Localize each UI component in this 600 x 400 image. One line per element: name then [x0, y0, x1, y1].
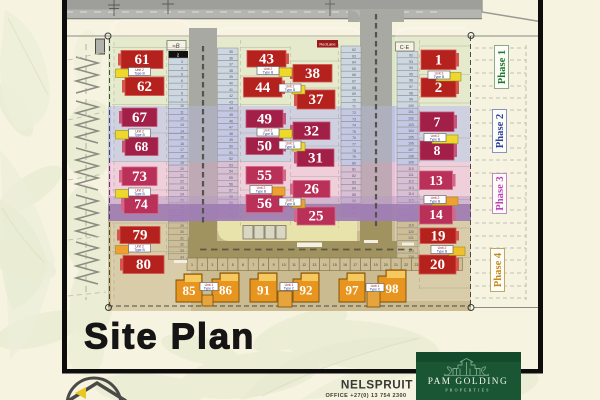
svg-text:64: 64	[352, 61, 356, 65]
svg-text:75: 75	[352, 130, 356, 134]
svg-text:49: 49	[229, 138, 233, 142]
svg-text:Phase 3: Phase 3	[495, 176, 506, 210]
svg-text:12: 12	[302, 263, 306, 267]
svg-text:113: 113	[408, 186, 414, 190]
svg-text:36: 36	[229, 56, 233, 60]
svg-text:72: 72	[352, 111, 356, 115]
svg-text:70: 70	[352, 98, 356, 102]
svg-text:94: 94	[409, 66, 413, 70]
svg-text:25: 25	[309, 209, 324, 225]
svg-text:4: 4	[222, 263, 224, 267]
svg-text:50: 50	[257, 139, 272, 155]
svg-text:93: 93	[409, 60, 413, 64]
svg-text:14: 14	[180, 129, 184, 133]
svg-text:37: 37	[229, 63, 233, 67]
svg-text:Type B: Type B	[263, 71, 274, 75]
svg-text:Type B: Type B	[285, 145, 296, 149]
svg-text:7: 7	[252, 263, 254, 267]
svg-text:OFFICE +27(0) 13 754 2300: OFFICE +27(0) 13 754 2300	[325, 393, 406, 399]
svg-text:19: 19	[431, 228, 446, 244]
svg-text:71: 71	[352, 105, 356, 109]
svg-text:Phase 1: Phase 1	[497, 50, 508, 84]
svg-text:97: 97	[346, 283, 360, 298]
svg-text:17: 17	[353, 263, 357, 267]
svg-text:92: 92	[300, 283, 313, 298]
svg-text:55: 55	[229, 176, 233, 180]
svg-text:Type B: Type B	[134, 72, 145, 76]
svg-text:86: 86	[219, 283, 233, 298]
svg-text:110: 110	[408, 167, 414, 171]
svg-text:112: 112	[408, 180, 414, 184]
svg-text:37: 37	[309, 92, 325, 108]
svg-text:114: 114	[408, 192, 414, 196]
svg-text:31: 31	[180, 236, 184, 240]
svg-text:4: 4	[181, 66, 183, 70]
svg-text:79: 79	[352, 155, 356, 159]
svg-text:73: 73	[352, 117, 356, 121]
svg-text:13: 13	[429, 173, 443, 188]
svg-text:24: 24	[180, 192, 184, 196]
svg-text:15: 15	[333, 263, 337, 267]
svg-text:3: 3	[181, 60, 183, 64]
svg-text:PAM GOLDING: PAM GOLDING	[428, 377, 508, 387]
svg-text:57: 57	[229, 189, 233, 193]
svg-text:80: 80	[136, 257, 151, 273]
svg-text:Phase 2: Phase 2	[495, 114, 506, 148]
svg-text:74: 74	[134, 197, 148, 212]
svg-text:52: 52	[229, 157, 233, 161]
svg-text:7: 7	[434, 114, 441, 129]
svg-text:96: 96	[409, 79, 413, 83]
svg-text:8: 8	[434, 143, 441, 158]
svg-text:50: 50	[229, 145, 233, 149]
svg-text:Type B: Type B	[134, 133, 145, 137]
svg-text:8: 8	[181, 92, 183, 96]
svg-text:91: 91	[257, 283, 270, 298]
svg-text:10: 10	[282, 263, 286, 267]
svg-text:NELSPRUIT: NELSPRUIT	[341, 378, 413, 392]
svg-text:20: 20	[180, 167, 184, 171]
svg-text:84: 84	[352, 187, 356, 191]
svg-text:56: 56	[229, 182, 233, 186]
svg-text:68: 68	[352, 86, 356, 90]
svg-text:78: 78	[352, 149, 356, 153]
svg-text:22: 22	[404, 263, 408, 267]
svg-text:82: 82	[352, 174, 356, 178]
svg-text:23: 23	[414, 263, 418, 267]
svg-text:109: 109	[408, 161, 414, 165]
svg-text:45: 45	[229, 113, 233, 117]
svg-text:106: 106	[408, 142, 414, 146]
svg-text:11: 11	[180, 110, 184, 114]
svg-text:43: 43	[259, 51, 274, 67]
svg-text:101: 101	[408, 110, 414, 114]
svg-text:44: 44	[255, 80, 271, 96]
svg-text:3: 3	[211, 263, 213, 267]
svg-text:Type B: Type B	[437, 250, 448, 254]
svg-text:81: 81	[352, 168, 356, 172]
svg-text:C·E: C·E	[400, 45, 410, 51]
svg-text:13: 13	[180, 123, 184, 127]
svg-text:≈B: ≈B	[172, 44, 179, 50]
svg-text:62: 62	[137, 79, 152, 95]
svg-text:54: 54	[229, 170, 233, 174]
svg-text:22: 22	[180, 180, 184, 184]
svg-text:Type C: Type C	[284, 287, 295, 291]
svg-text:6: 6	[181, 79, 183, 83]
svg-text:53: 53	[229, 163, 233, 167]
svg-text:11: 11	[292, 263, 296, 267]
svg-text:85: 85	[183, 283, 197, 298]
svg-text:Type B: Type B	[430, 200, 441, 204]
svg-text:73: 73	[132, 169, 147, 185]
svg-text:63: 63	[352, 54, 356, 58]
svg-text:30: 30	[180, 230, 184, 234]
svg-text:Type B: Type B	[134, 248, 145, 252]
svg-text:Site Plan: Site Plan	[84, 316, 255, 357]
svg-text:77: 77	[352, 143, 356, 147]
svg-text:21: 21	[180, 173, 184, 177]
svg-text:39: 39	[229, 75, 233, 79]
svg-text:100: 100	[408, 104, 414, 108]
svg-text:Type B: Type B	[256, 190, 267, 194]
svg-text:5: 5	[232, 263, 234, 267]
svg-text:49: 49	[257, 111, 272, 127]
svg-text:Type B: Type B	[285, 202, 296, 206]
svg-text:Type C: Type C	[370, 288, 381, 292]
svg-text:RedLane: RedLane	[319, 42, 336, 47]
svg-text:41: 41	[229, 88, 233, 92]
svg-text:7: 7	[181, 85, 183, 89]
svg-text:6: 6	[242, 263, 244, 267]
svg-text:67: 67	[132, 110, 148, 126]
svg-text:119: 119	[408, 224, 414, 228]
svg-text:18: 18	[180, 155, 184, 159]
svg-text:42: 42	[229, 94, 233, 98]
svg-text:32: 32	[304, 123, 319, 139]
svg-text:40: 40	[229, 82, 233, 86]
svg-text:Type B: Type B	[430, 138, 441, 142]
svg-text:111: 111	[408, 173, 413, 177]
svg-text:26: 26	[304, 182, 320, 198]
svg-text:62: 62	[352, 48, 356, 52]
svg-text:121: 121	[408, 236, 414, 240]
svg-text:PROPERTIES: PROPERTIES	[445, 388, 490, 393]
svg-text:107: 107	[408, 148, 414, 152]
svg-text:120: 120	[408, 230, 414, 234]
svg-text:29: 29	[180, 224, 184, 228]
svg-text:108: 108	[408, 154, 414, 158]
svg-text:14: 14	[429, 207, 443, 222]
svg-text:2: 2	[201, 263, 203, 267]
svg-text:34: 34	[180, 255, 184, 259]
svg-text:1: 1	[191, 263, 193, 267]
svg-text:Type B: Type B	[263, 132, 274, 136]
svg-text:48: 48	[229, 132, 233, 136]
svg-text:102: 102	[408, 117, 414, 121]
svg-text:69: 69	[352, 92, 356, 96]
svg-text:97: 97	[409, 85, 413, 89]
svg-text:18: 18	[363, 263, 367, 267]
svg-text:80: 80	[352, 161, 356, 165]
svg-text:23: 23	[180, 186, 184, 190]
svg-text:Type C: Type C	[204, 287, 215, 291]
svg-text:32: 32	[180, 243, 184, 247]
svg-text:66: 66	[352, 73, 356, 77]
svg-text:16: 16	[180, 142, 184, 146]
svg-text:46: 46	[229, 119, 233, 123]
svg-text:95: 95	[409, 72, 413, 76]
svg-text:51: 51	[229, 151, 233, 155]
svg-text:20: 20	[430, 257, 445, 273]
svg-text:15: 15	[180, 136, 184, 140]
svg-text:104: 104	[408, 129, 414, 133]
svg-text:33: 33	[180, 249, 184, 253]
svg-text:68: 68	[135, 139, 149, 154]
svg-text:1: 1	[435, 52, 443, 68]
svg-text:74: 74	[352, 124, 356, 128]
svg-text:17: 17	[180, 148, 184, 152]
svg-text:19: 19	[374, 263, 378, 267]
svg-text:9: 9	[273, 263, 275, 267]
svg-text:Type B: Type B	[434, 75, 445, 79]
svg-text:105: 105	[408, 135, 414, 139]
svg-text:9: 9	[181, 98, 183, 102]
svg-text:65: 65	[352, 67, 356, 71]
svg-text:98: 98	[386, 281, 400, 296]
svg-text:56: 56	[257, 196, 273, 212]
svg-text:16: 16	[343, 263, 347, 267]
svg-text:99: 99	[409, 98, 413, 102]
svg-text:43: 43	[229, 100, 233, 104]
svg-text:38: 38	[305, 66, 320, 82]
svg-text:Type B: Type B	[285, 88, 296, 92]
svg-text:61: 61	[135, 52, 150, 68]
svg-text:103: 103	[408, 123, 414, 127]
svg-text:8: 8	[262, 263, 264, 267]
svg-text:55: 55	[257, 168, 272, 184]
svg-text:14: 14	[323, 263, 327, 267]
svg-text:21: 21	[394, 263, 398, 267]
svg-text:98: 98	[409, 91, 413, 95]
svg-text:Phase 4: Phase 4	[493, 252, 504, 287]
svg-text:44: 44	[229, 107, 233, 111]
svg-text:67: 67	[352, 80, 356, 84]
svg-text:Type B: Type B	[134, 192, 145, 196]
svg-text:20: 20	[384, 263, 388, 267]
svg-text:13: 13	[312, 263, 316, 267]
svg-text:79: 79	[133, 228, 148, 244]
svg-text:92: 92	[409, 54, 413, 58]
svg-text:2: 2	[435, 80, 443, 96]
svg-text:47: 47	[229, 126, 233, 130]
svg-text:31: 31	[308, 150, 323, 166]
svg-text:76: 76	[352, 136, 356, 140]
svg-text:35: 35	[229, 50, 233, 54]
svg-text:83: 83	[352, 180, 356, 184]
svg-text:38: 38	[229, 69, 233, 73]
svg-text:12: 12	[180, 117, 184, 121]
